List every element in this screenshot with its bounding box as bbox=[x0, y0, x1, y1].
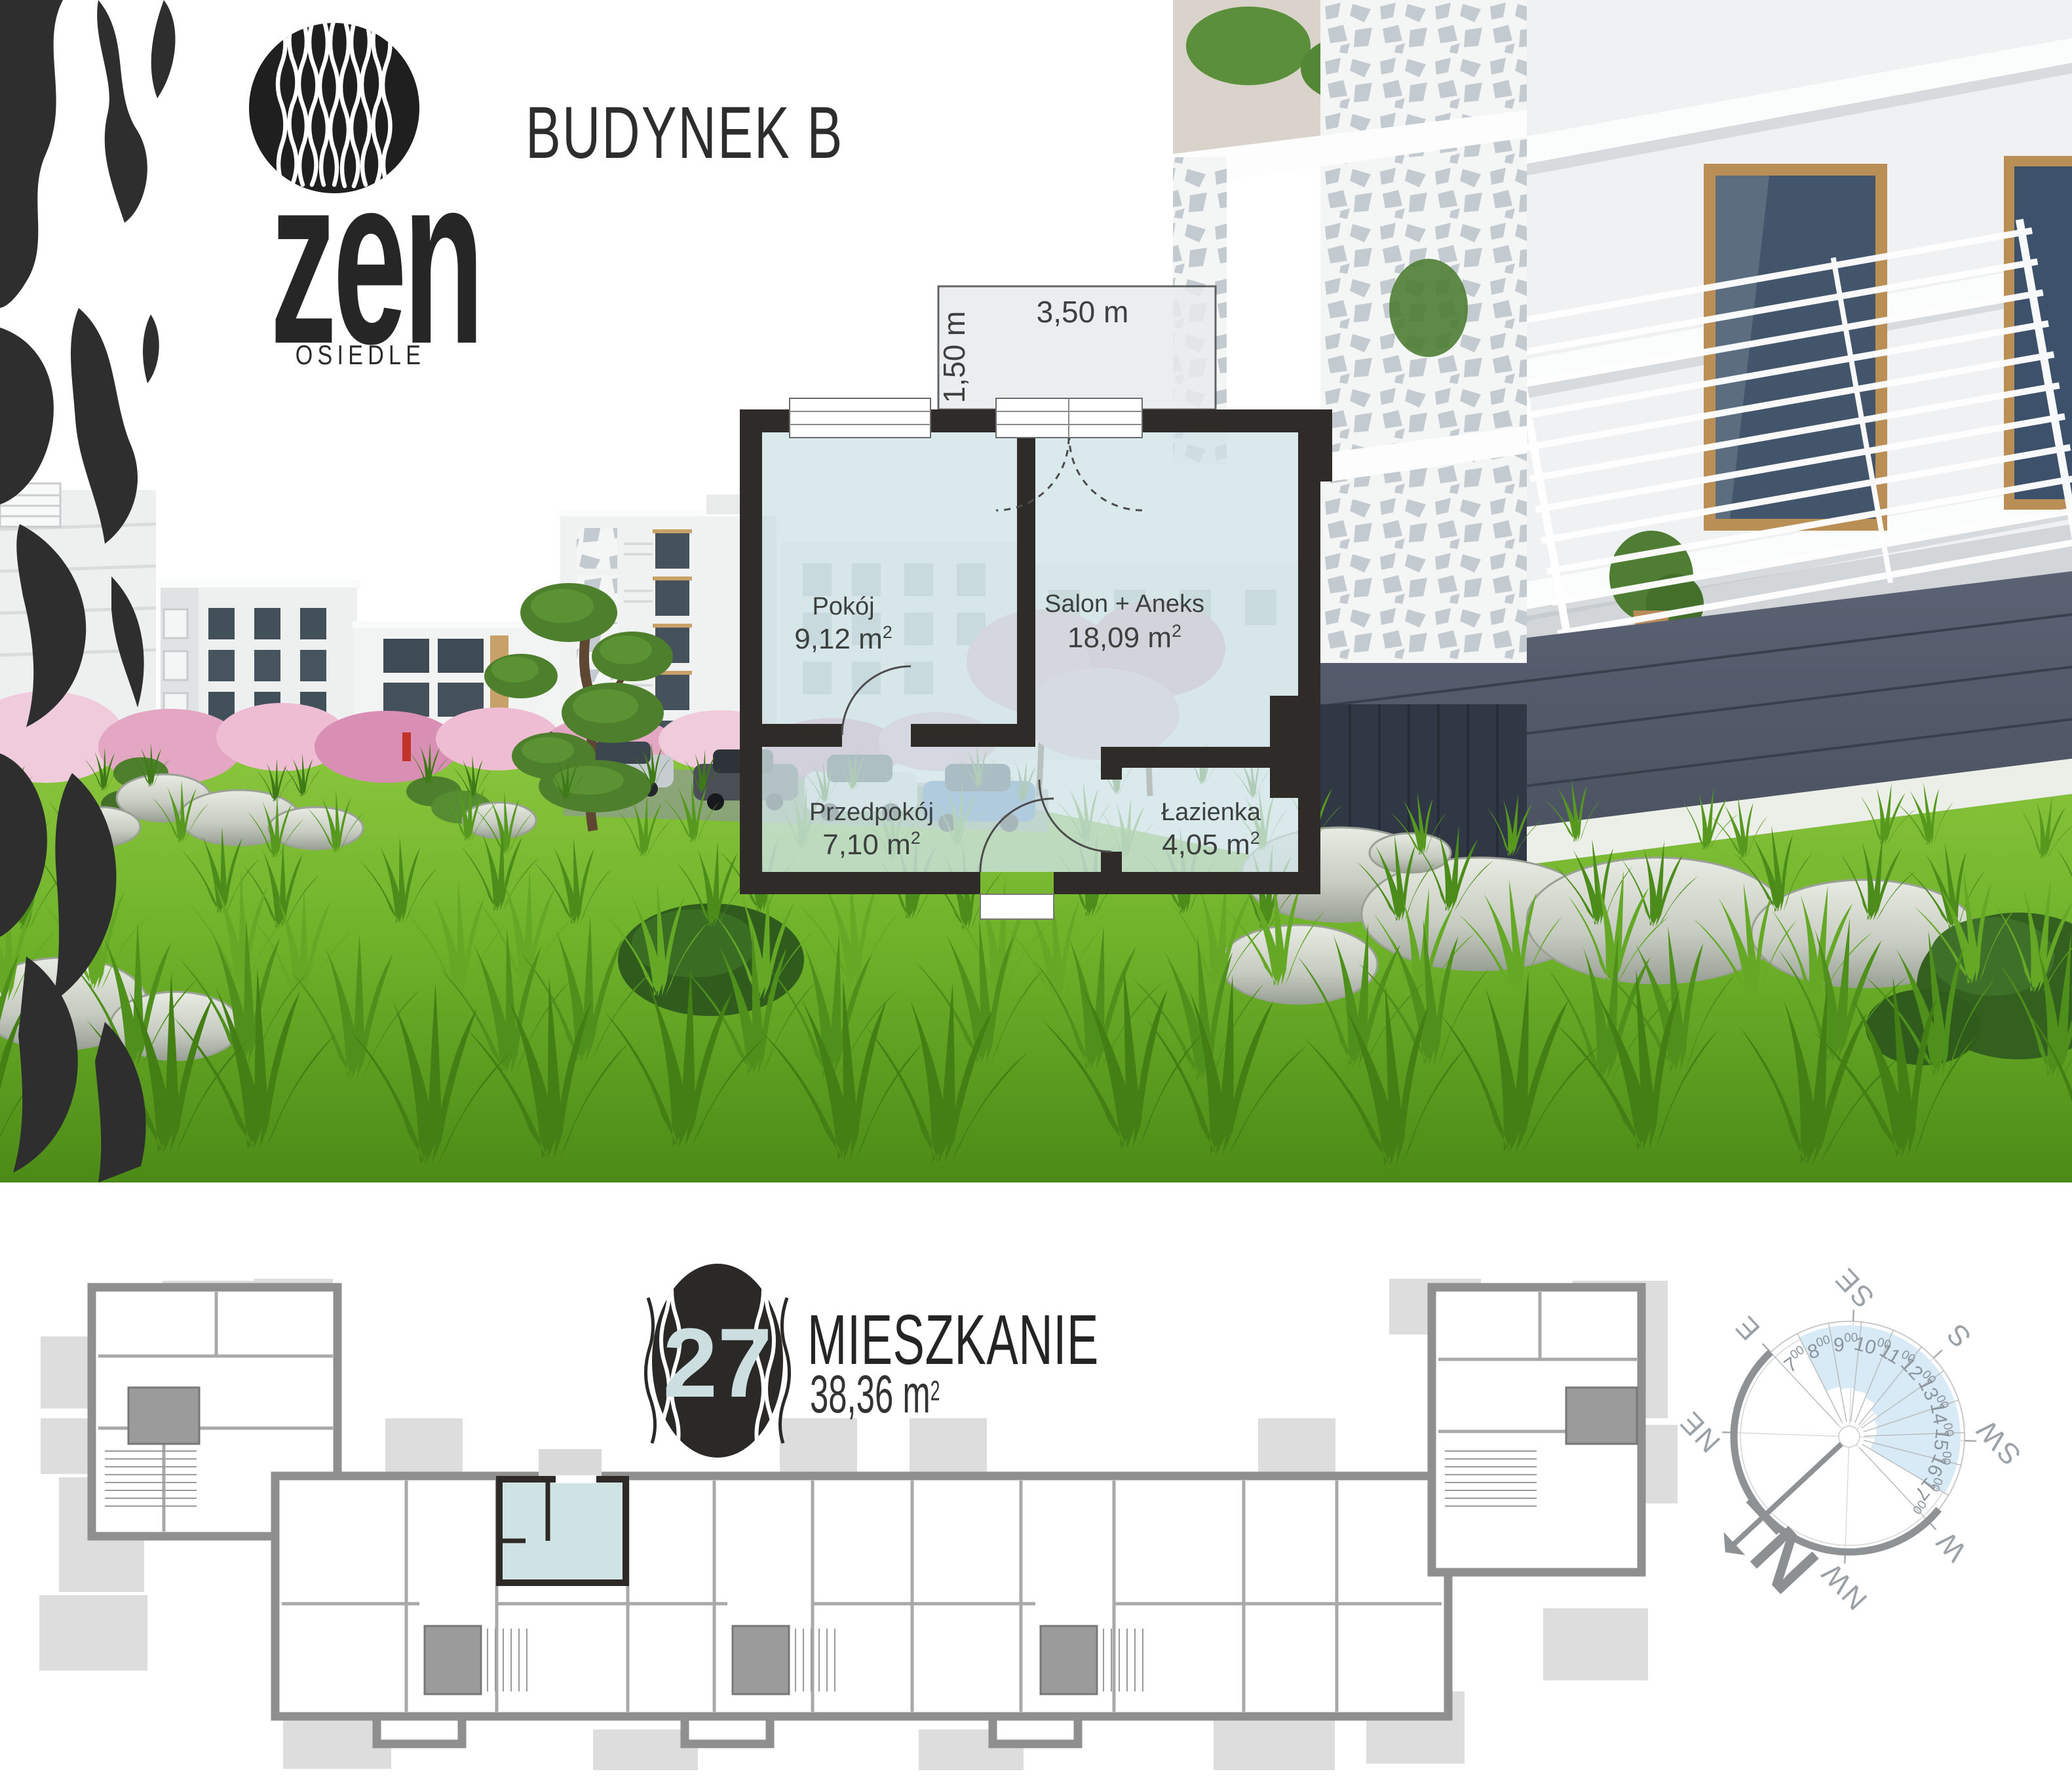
unit-area-sup: 2 bbox=[930, 1375, 940, 1407]
decorative-wave-strip bbox=[0, 0, 197, 1182]
compass-direction-label: E bbox=[1729, 1309, 1767, 1346]
compass-direction-tick bbox=[1934, 1350, 1942, 1358]
room-name-lazienka: Łazienka bbox=[1161, 799, 1261, 826]
compass-direction-label: NW bbox=[1814, 1556, 1873, 1615]
compass-direction-label: S bbox=[1940, 1316, 1978, 1353]
room-area-przedpokoj: 7,10 m2 bbox=[822, 828, 921, 861]
badge-unit-number: 27 bbox=[663, 1308, 773, 1418]
compass-direction-label: W bbox=[1929, 1524, 1972, 1568]
balcony-depth-label: 1,50 m bbox=[937, 311, 971, 404]
room-name-pokoj: Pokój bbox=[812, 593, 874, 620]
compass-direction-label: SE bbox=[1828, 1261, 1881, 1314]
compass-body: 7008009001000110012001300140015001600170… bbox=[1678, 1261, 2044, 1628]
unit-badge: 27 bbox=[639, 1261, 796, 1477]
balcony-overlay: 3,50 m 1,50 m bbox=[937, 286, 1216, 409]
unit-area-label: 38,36 m2 bbox=[810, 1364, 940, 1426]
balcony-width-label: 3,50 m bbox=[1037, 295, 1129, 329]
compass-rose: 7008009001000110012001300140015001600170… bbox=[1678, 1261, 2044, 1628]
room-area-salon: 18,09 m2 bbox=[1067, 621, 1181, 654]
brochure-page: 3,50 m 1,50 m bbox=[0, 0, 2072, 1776]
building-title: BUDYNEK B bbox=[526, 90, 843, 175]
logo-subtitle: OSIEDLE bbox=[228, 339, 493, 371]
room-name-przedpokoj: Przedpokój bbox=[809, 799, 934, 826]
unit-27-highlight bbox=[499, 1449, 626, 1583]
room-area-pokoj: 9,12 m2 bbox=[794, 622, 892, 655]
compass-direction-label: NE bbox=[1678, 1405, 1727, 1459]
room-name-salon: Salon + Aneks bbox=[1045, 590, 1204, 618]
unit-area-value: 38,36 m bbox=[810, 1365, 930, 1424]
logo-wordmark: zen bbox=[271, 185, 451, 334]
compass-direction-label: SW bbox=[1970, 1412, 2027, 1471]
compass-direction-tick bbox=[1763, 1344, 1771, 1352]
room-area-lazienka: 4,05 m2 bbox=[1162, 828, 1260, 861]
